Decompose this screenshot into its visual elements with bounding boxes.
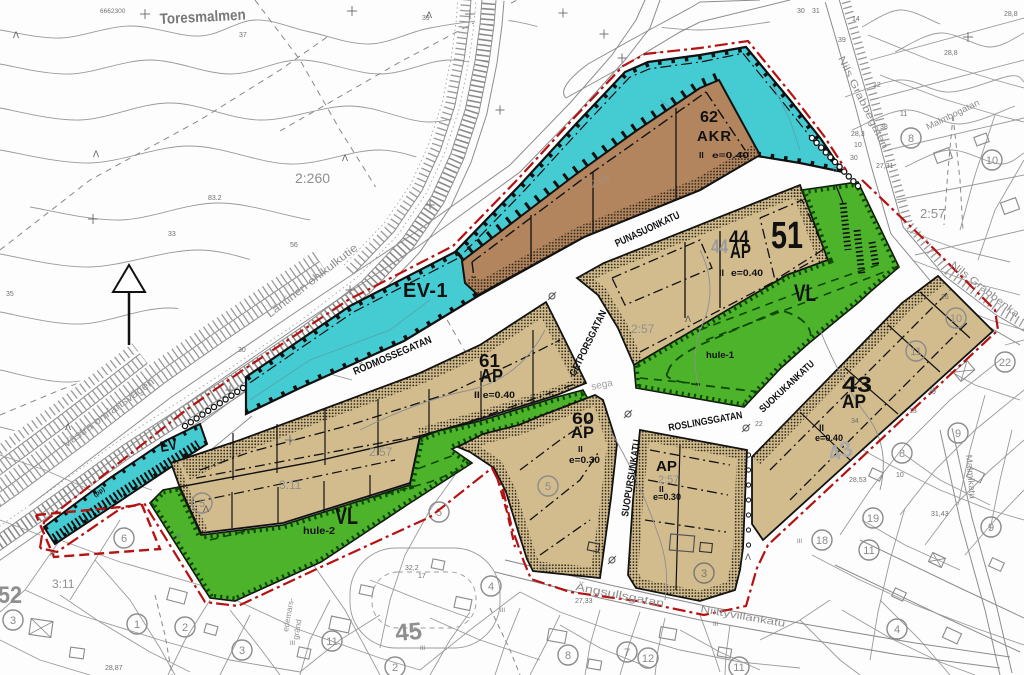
svg-text:33: 33 (168, 231, 176, 238)
svg-text:AP: AP (656, 458, 677, 475)
svg-text:62: 62 (700, 109, 718, 126)
svg-text:hule-1: hule-1 (706, 350, 735, 361)
svg-text:52: 52 (0, 582, 22, 609)
svg-text:e=0.30: e=0.30 (569, 455, 600, 466)
svg-text:5: 5 (545, 481, 551, 493)
svg-text:11: 11 (733, 662, 744, 674)
svg-text:19: 19 (867, 513, 879, 525)
svg-text:2:57: 2:57 (920, 206, 945, 221)
svg-text:8: 8 (565, 650, 571, 662)
svg-text:III: III (420, 646, 425, 652)
svg-text:11: 11 (326, 636, 337, 648)
svg-text:II: II (819, 423, 824, 433)
svg-text:III: III (713, 622, 718, 628)
svg-text:34: 34 (851, 418, 859, 425)
svg-text:Λ: Λ (203, 504, 209, 514)
svg-text:AP: AP (480, 366, 503, 386)
svg-text:II: II (719, 268, 724, 278)
svg-text:III: III (931, 388, 936, 394)
svg-text:0: 0 (833, 167, 837, 174)
svg-text:30: 30 (797, 8, 805, 15)
svg-text:11: 11 (863, 545, 874, 557)
svg-text:14: 14 (852, 16, 860, 23)
svg-text:22: 22 (755, 421, 763, 428)
svg-text:III: III (500, 608, 505, 614)
svg-text:II: II (578, 444, 583, 454)
svg-text:II e=0.40: II e=0.40 (474, 390, 515, 401)
svg-text:2: 2 (392, 662, 398, 674)
svg-text:7: 7 (624, 647, 630, 659)
svg-text:Λ: Λ (685, 314, 691, 324)
svg-text:83.2: 83.2 (208, 195, 222, 202)
svg-text:AKR: AKR (697, 128, 732, 145)
svg-text:e=0.40: e=0.40 (712, 150, 749, 160)
svg-text:56: 56 (290, 242, 298, 249)
svg-text:26: 26 (941, 294, 949, 301)
svg-text:22: 22 (999, 357, 1011, 369)
svg-text:e=0.40: e=0.40 (731, 268, 763, 279)
svg-text:AP: AP (842, 392, 866, 413)
svg-text:VL: VL (335, 503, 358, 530)
svg-text:35: 35 (6, 291, 14, 298)
svg-text:VL: VL (794, 280, 816, 307)
svg-text:10: 10 (950, 313, 962, 325)
svg-text:2:57: 2:57 (631, 322, 655, 336)
svg-text:EV: EV (159, 436, 179, 456)
svg-text:hule-2: hule-2 (303, 525, 335, 537)
svg-text:28,53: 28,53 (849, 477, 867, 484)
svg-text:12: 12 (642, 653, 654, 665)
svg-text:10: 10 (986, 155, 998, 167)
svg-text:III: III (797, 539, 802, 545)
svg-text:e=0.30: e=0.30 (653, 492, 681, 502)
svg-text:Λ: Λ (65, 422, 71, 432)
svg-text:27,33: 27,33 (575, 598, 593, 605)
svg-text:6662300: 6662300 (100, 8, 126, 15)
svg-text:11: 11 (900, 111, 907, 118)
svg-text:13: 13 (909, 408, 917, 415)
svg-text:II: II (699, 150, 704, 160)
svg-text:10: 10 (896, 472, 904, 479)
svg-text:38: 38 (880, 124, 888, 131)
svg-text:32,2: 32,2 (405, 565, 419, 572)
svg-text:3: 3 (239, 645, 245, 657)
svg-text:28,3: 28,3 (851, 131, 865, 138)
svg-text:Λ: Λ (342, 153, 348, 163)
svg-text:30: 30 (850, 155, 858, 162)
svg-text:AP: AP (730, 241, 751, 263)
svg-text:9: 9 (955, 428, 961, 440)
svg-text:18: 18 (816, 535, 828, 547)
svg-text:11: 11 (910, 346, 921, 358)
svg-text:9: 9 (988, 522, 994, 534)
svg-text:28,8: 28,8 (1004, 11, 1018, 18)
svg-text:37: 37 (239, 32, 247, 39)
svg-text:51: 51 (771, 215, 803, 257)
svg-text:2:260: 2:260 (295, 170, 330, 186)
svg-text:III: III (50, 552, 55, 558)
svg-text:3:11: 3:11 (52, 577, 75, 591)
svg-text:8: 8 (899, 448, 905, 460)
svg-text:2:57: 2:57 (658, 474, 679, 486)
svg-text:Λ: Λ (426, 10, 432, 20)
svg-text:45: 45 (394, 618, 423, 647)
svg-text:2:57: 2:57 (369, 445, 393, 459)
svg-text:31,43: 31,43 (931, 511, 949, 518)
svg-text:EV-1: EV-1 (403, 280, 448, 302)
svg-text:4: 4 (894, 624, 900, 636)
svg-text:6: 6 (121, 533, 127, 545)
svg-text:III: III (290, 641, 295, 647)
svg-text:3: 3 (701, 568, 707, 580)
svg-text:4: 4 (488, 581, 494, 593)
svg-text:28,8: 28,8 (944, 50, 958, 57)
svg-text:Λ: Λ (93, 149, 99, 159)
svg-text:39: 39 (838, 37, 846, 44)
svg-text:28,87: 28,87 (105, 665, 123, 672)
svg-text:10: 10 (854, 142, 862, 149)
svg-text:12: 12 (873, 82, 881, 89)
svg-text:Λ: Λ (745, 552, 751, 562)
svg-text:27,31: 27,31 (876, 163, 894, 170)
svg-text:31: 31 (812, 8, 820, 15)
svg-text:III: III (176, 534, 181, 540)
svg-text:3: 3 (10, 615, 16, 627)
svg-text:17: 17 (418, 573, 426, 580)
svg-text:3:11: 3:11 (279, 478, 302, 492)
svg-text:AP: AP (571, 423, 594, 442)
svg-text:44: 44 (711, 237, 728, 258)
svg-text:1: 1 (134, 619, 140, 631)
svg-text:Λ: Λ (13, 30, 19, 40)
svg-text:8: 8 (908, 133, 914, 145)
svg-text:30: 30 (238, 347, 246, 354)
svg-text:2: 2 (182, 622, 188, 634)
svg-text:23: 23 (540, 565, 548, 572)
